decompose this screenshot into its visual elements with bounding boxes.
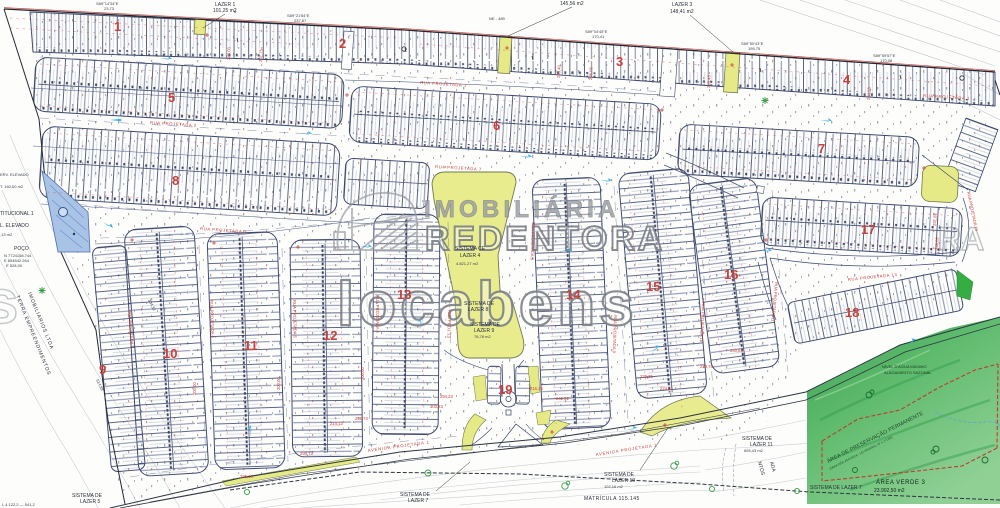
svg-text:200,00: 200,00	[192, 382, 197, 395]
svg-text:NE - 489: NE - 489	[489, 16, 506, 21]
svg-text:23.902,50 m2: 23.902,50 m2	[874, 488, 905, 494]
svg-text:234,55: 234,55	[866, 86, 872, 100]
svg-text:294,73: 294,73	[300, 451, 313, 456]
svg-text:IMOBILIÁRIA: IMOBILIÁRIA	[424, 195, 620, 223]
svg-text:SISTEMA CE: SISTEMA CE	[455, 246, 486, 252]
svg-text:224,52: 224,52	[660, 386, 673, 391]
svg-text:T. 160,00 m2: T. 160,00 m2	[0, 184, 24, 189]
svg-text:NÍVEL D'ÁGUA MÁXIMO: NÍVEL D'ÁGUA MÁXIMO	[882, 364, 927, 369]
svg-text:11: 11	[244, 338, 258, 353]
svg-text:,13 m2: ,13 m2	[0, 232, 13, 237]
svg-text:170,41: 170,41	[592, 34, 605, 39]
svg-text:ÁREA VERDE 3: ÁREA VERDE 3	[876, 479, 926, 486]
svg-text:12: 12	[323, 328, 337, 343]
svg-text:245,05: 245,05	[588, 66, 594, 80]
svg-text:240,00: 240,00	[226, 46, 232, 60]
svg-text:200,00: 200,00	[360, 367, 365, 380]
svg-text:10: 10	[163, 346, 177, 361]
svg-text:102,16 m2: 102,16 m2	[604, 484, 624, 489]
svg-text:RUA PROJETADA 6: RUA PROJETADA 6	[375, 295, 380, 334]
svg-text:4: 4	[843, 72, 851, 87]
svg-text:LAZER 4: LAZER 4	[460, 253, 481, 259]
svg-text:16: 16	[724, 267, 738, 282]
svg-text:14: 14	[566, 287, 581, 302]
svg-text:248,02: 248,02	[934, 236, 940, 250]
svg-text:TITUCIONAL 1: TITUCIONAL 1	[0, 211, 34, 217]
svg-text:241,75: 241,75	[258, 48, 264, 62]
svg-text:8: 8	[172, 173, 179, 188]
svg-text:RUA PROJ. 13: RUA PROJ. 13	[447, 310, 452, 339]
svg-text:294,23: 294,23	[440, 394, 453, 399]
svg-text:2: 2	[339, 36, 346, 51]
svg-text:216,36: 216,36	[530, 386, 543, 391]
svg-text:303,23: 303,23	[430, 404, 443, 409]
svg-text:LAZER 7: LAZER 7	[408, 498, 429, 504]
svg-text:17: 17	[861, 222, 875, 237]
svg-text:6: 6	[493, 118, 500, 133]
svg-text:ALAGAMENTO SAZONAL: ALAGAMENTO SAZONAL	[884, 370, 932, 375]
svg-text:18: 18	[845, 305, 859, 320]
svg-text:LAZER 3: LAZER 3	[672, 2, 693, 8]
svg-text:13: 13	[397, 287, 411, 302]
svg-text:240,83: 240,83	[730, 348, 743, 353]
svg-text:655,43 m2: 655,43 m2	[744, 448, 764, 453]
svg-text:145,56 m2: 145,56 m2	[560, 1, 584, 7]
svg-text:5: 5	[168, 90, 175, 105]
svg-text:295,13: 295,13	[240, 474, 253, 479]
svg-text:LAZER 5: LAZER 5	[80, 499, 101, 505]
svg-text:3: 3	[616, 54, 623, 69]
svg-text:243,40: 243,40	[556, 64, 562, 78]
svg-text:23,73: 23,73	[104, 6, 115, 11]
svg-text:15: 15	[646, 279, 660, 294]
svg-text:205,74: 205,74	[355, 416, 368, 421]
svg-text:243,45: 243,45	[706, 74, 712, 88]
svg-text:L. ELEVADO: L. ELEVADO	[0, 223, 29, 229]
svg-text:19: 19	[498, 382, 512, 397]
svg-text:239,76: 239,76	[700, 364, 713, 369]
svg-text:POÇO: POÇO	[14, 246, 29, 252]
svg-text:1: 1	[114, 19, 121, 34]
svg-text:s: s	[0, 268, 18, 337]
svg-text:200,00: 200,00	[276, 377, 281, 390]
svg-text:229,35: 229,35	[640, 374, 653, 379]
svg-text:237,87: 237,87	[294, 18, 307, 23]
svg-text:7: 7	[818, 141, 825, 156]
svg-text:4.821,27 m2: 4.821,27 m2	[456, 261, 479, 266]
svg-text:L 4.122,2 — 541,2: L 4.122,2 — 541,2	[2, 502, 36, 507]
svg-text:242,92: 242,92	[556, 396, 569, 401]
svg-text:195,75: 195,75	[748, 46, 761, 51]
svg-text:RUA PROJETADA 5: RUA PROJETADA 5	[292, 300, 298, 339]
svg-text:214,13: 214,13	[330, 421, 343, 426]
svg-text:78,78 m2: 78,78 m2	[474, 334, 491, 339]
svg-text:9: 9	[99, 362, 106, 377]
svg-text:LAZER 8: LAZER 8	[468, 307, 489, 313]
svg-text:ERV. ELEVADO: ERV. ELEVADO	[0, 172, 29, 177]
svg-text:SISTEMA DE LAZER 7: SISTEMA DE LAZER 7	[810, 485, 862, 491]
svg-text:E 528,00: E 528,00	[6, 263, 23, 268]
svg-text:MATRÍCULA 115.145: MATRÍCULA 115.145	[584, 495, 640, 502]
svg-text:170,08: 170,08	[880, 58, 893, 63]
svg-text:148,41 m2: 148,41 m2	[670, 9, 694, 15]
